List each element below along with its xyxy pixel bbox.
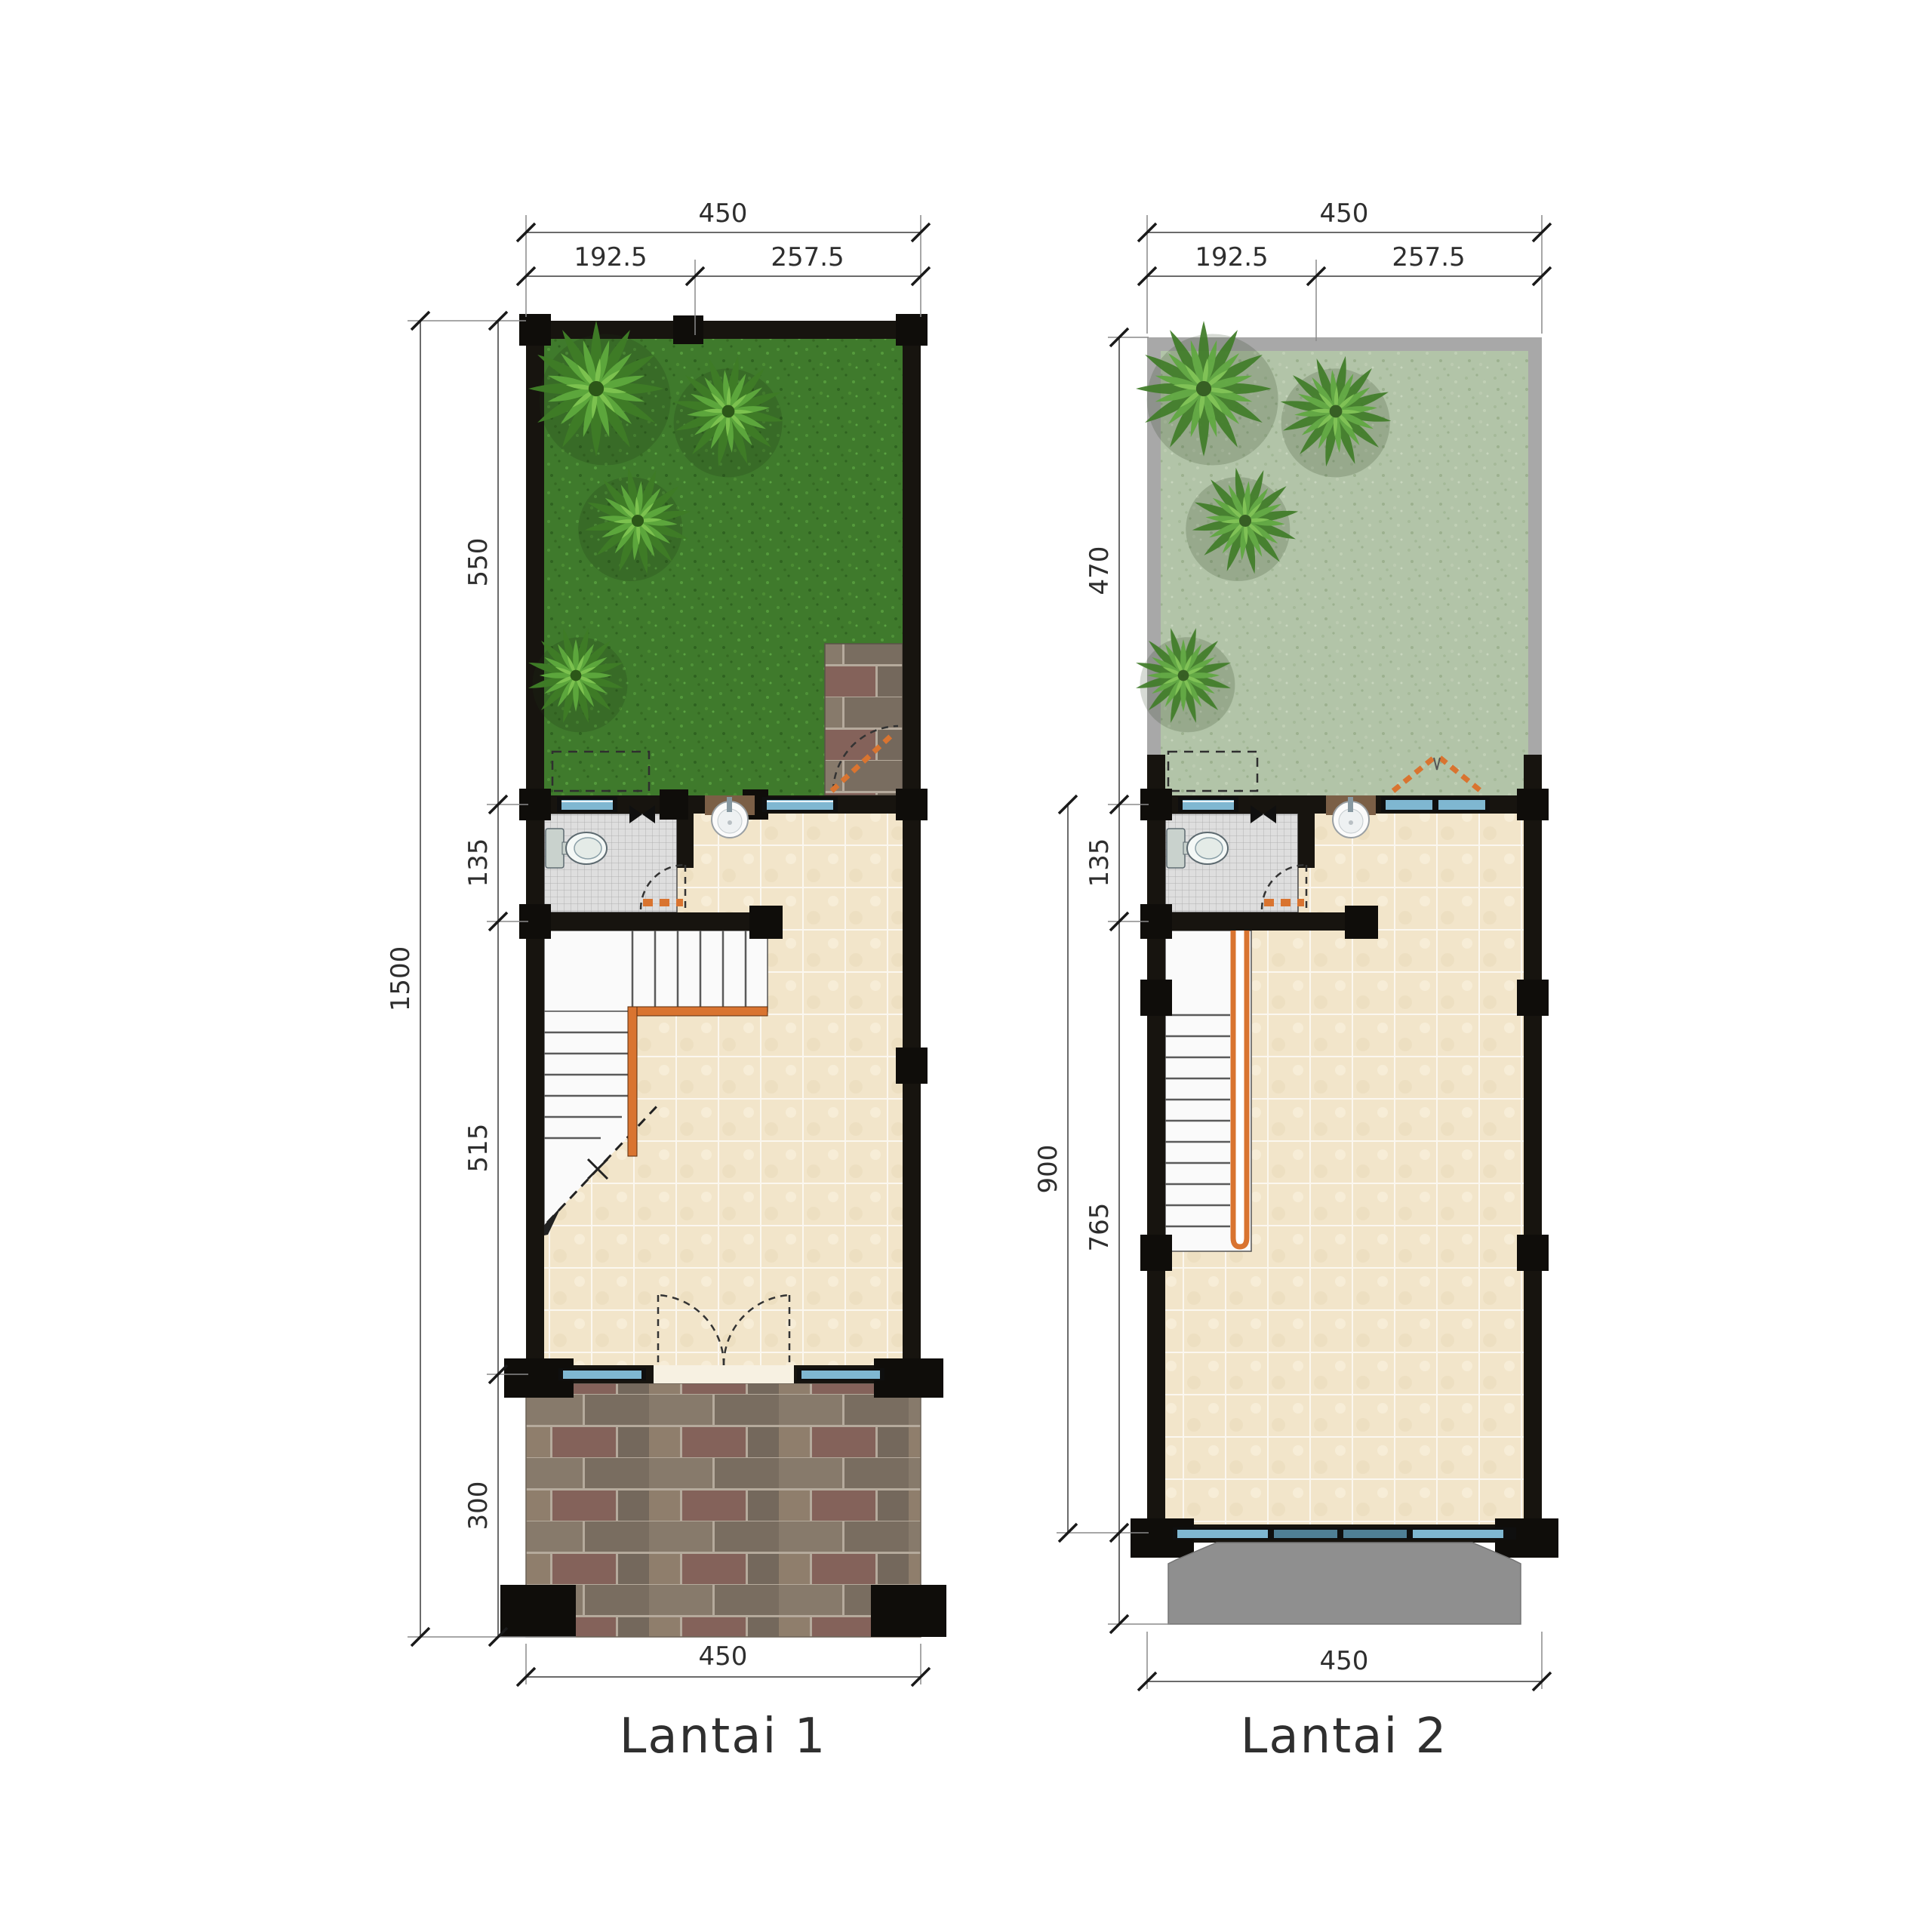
window-garden xyxy=(762,797,838,812)
window-bathroom xyxy=(557,797,617,812)
dim-text-side-seg2: 135 xyxy=(463,838,494,888)
plan2-title: Lantai 2 xyxy=(1241,1709,1448,1764)
terrace-floor xyxy=(526,1383,921,1637)
dim2-text-side-seg2: 135 xyxy=(1084,838,1115,888)
window2-front xyxy=(1173,1527,1516,1540)
toilet2-icon xyxy=(1167,829,1228,868)
wall2-bathroom-side xyxy=(1298,795,1315,868)
dim-text-side-total: 1500 xyxy=(386,946,416,1012)
wall-bathroom-bottom xyxy=(526,912,768,931)
wall-top xyxy=(526,321,921,339)
dim2-text-top-right: 257.5 xyxy=(1392,242,1465,272)
dim2-text-top-left: 192.5 xyxy=(1195,242,1268,272)
window2-bathroom xyxy=(1178,797,1238,812)
wall2-right xyxy=(1524,755,1542,1543)
dim2-text-bottom-total: 450 xyxy=(1320,1646,1369,1676)
wall-right xyxy=(903,321,921,1383)
front-door-opening xyxy=(654,1365,794,1383)
wall2-left xyxy=(1147,755,1165,1543)
dimension-bottom: 450 xyxy=(517,1641,930,1686)
dim-text-side-seg1: 550 xyxy=(463,538,494,587)
balcony-slab xyxy=(1168,1543,1521,1624)
wall2-bathroom-bottom xyxy=(1147,912,1363,931)
dim2-text-side-seg3: 765 xyxy=(1084,1203,1115,1252)
stair2-railing xyxy=(1233,931,1247,1247)
dim2-text-top-total: 450 xyxy=(1320,198,1369,229)
stair-railing-vertical xyxy=(628,1007,637,1156)
dim-text-top-total: 450 xyxy=(699,198,748,229)
dim-text-side-seg4: 300 xyxy=(463,1481,494,1531)
dim2-text-side-outer: 900 xyxy=(1033,1145,1063,1194)
wall-left xyxy=(526,321,544,1383)
window-front-left xyxy=(558,1368,646,1380)
dim-text-side-seg3: 515 xyxy=(463,1124,494,1173)
floorplan-sheet: 450 192.5 257.5 1500 550 135 515 300 xyxy=(0,0,1932,1932)
plan1-title: Lantai 1 xyxy=(620,1709,827,1764)
floor-plan-lantai-1: 450 192.5 257.5 1500 550 135 515 300 xyxy=(386,198,946,1764)
dimension-top: 450 192.5 257.5 xyxy=(517,198,930,335)
dim-text-top-left: 192.5 xyxy=(574,242,647,272)
toilet-icon xyxy=(546,829,607,868)
dim2-text-side-seg1: 470 xyxy=(1084,546,1115,595)
window2-roof-access xyxy=(1381,797,1490,812)
window-front-right xyxy=(797,1368,884,1380)
floor-plan-lantai-2: 450 192.5 257.5 470 135 765 900 xyxy=(1033,198,1558,1764)
floorplan-drawing: 450 192.5 257.5 1500 550 135 515 300 xyxy=(0,0,1932,1932)
stair-railing-horizontal xyxy=(628,1007,768,1016)
dim-text-bottom-total: 450 xyxy=(699,1641,748,1672)
dim-text-top-right: 257.5 xyxy=(771,242,844,272)
dimension2-bottom: 450 xyxy=(1138,1632,1551,1690)
dimension2-top: 450 192.5 257.5 xyxy=(1138,198,1551,341)
